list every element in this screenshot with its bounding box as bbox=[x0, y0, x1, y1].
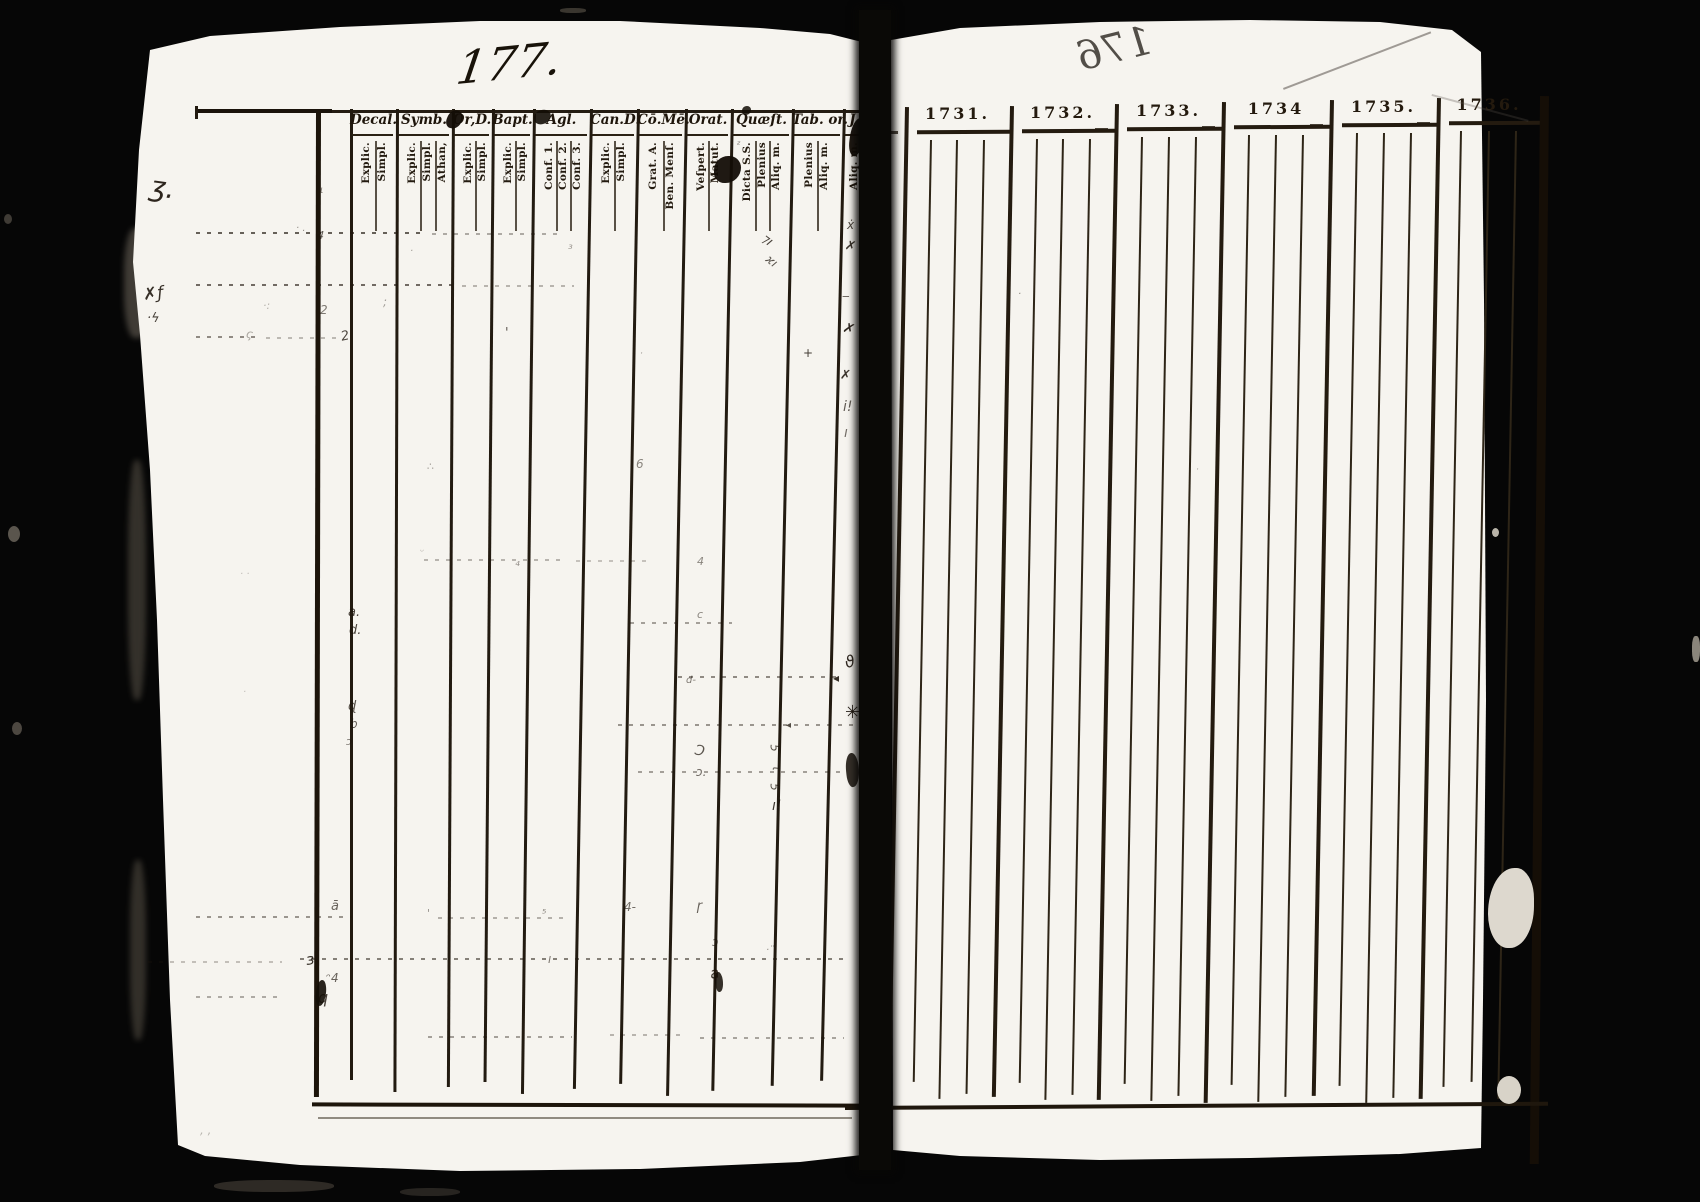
binding-gutter-shadow bbox=[859, 10, 891, 1170]
scan-speck bbox=[400, 1188, 460, 1196]
scan-speck bbox=[214, 1180, 334, 1192]
scanned-book-spread: 177. 176 Decal.Explic.Simpl.Symb.Explic.… bbox=[0, 0, 1700, 1202]
torn-edge-fiber bbox=[128, 460, 146, 700]
scan-speck bbox=[1497, 1076, 1521, 1104]
right-page-border-rule bbox=[1530, 96, 1549, 1164]
scan-speck bbox=[560, 8, 586, 13]
torn-edge-fiber bbox=[130, 860, 146, 1040]
scan-speck bbox=[1492, 528, 1499, 537]
scan-speck bbox=[8, 526, 20, 542]
scan-speck bbox=[1488, 868, 1534, 948]
year-subcolumn-line bbox=[1497, 131, 1517, 1099]
scan-speck bbox=[1692, 636, 1700, 662]
scan-speck bbox=[4, 214, 12, 224]
scan-speck bbox=[12, 722, 22, 735]
